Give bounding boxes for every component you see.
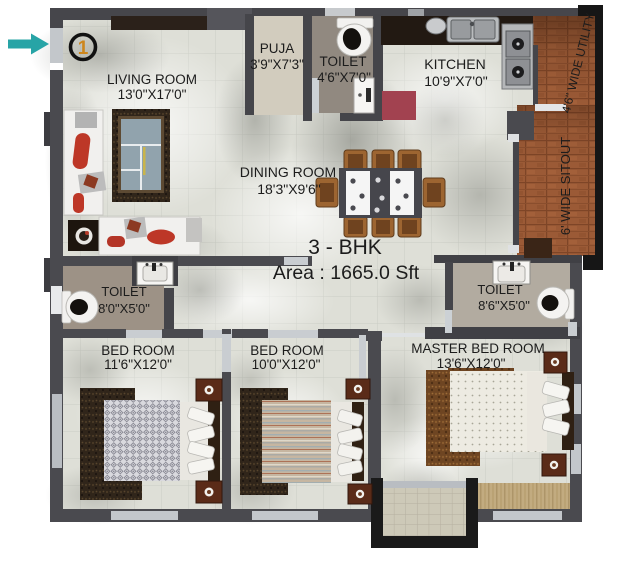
svg-text:10'0"X12'0": 10'0"X12'0": [252, 357, 321, 372]
svg-text:6' WIDE SITOUT: 6' WIDE SITOUT: [558, 137, 573, 235]
svg-text:8'0"X5'0": 8'0"X5'0": [98, 301, 150, 316]
svg-text:PUJA: PUJA: [260, 41, 295, 56]
svg-text:8'6"X5'0": 8'6"X5'0": [478, 298, 530, 313]
svg-text:18'3"X9'6": 18'3"X9'6": [257, 181, 321, 197]
svg-text:DINING ROOM: DINING ROOM: [240, 164, 336, 180]
svg-text:LIVING ROOM: LIVING ROOM: [107, 72, 197, 87]
svg-text:TOILET: TOILET: [101, 284, 146, 299]
svg-text:TOILET: TOILET: [319, 54, 366, 69]
svg-text:3'9"X7'3": 3'9"X7'3": [250, 57, 304, 72]
svg-text:KITCHEN: KITCHEN: [424, 56, 485, 72]
svg-text:Area : 1665.0 Sft: Area : 1665.0 Sft: [273, 262, 420, 284]
svg-text:TOILET: TOILET: [477, 282, 522, 297]
svg-text:BED ROOM: BED ROOM: [250, 343, 324, 358]
svg-text:13'0"X17'0": 13'0"X17'0": [118, 87, 187, 102]
svg-text:10'9"X7'0": 10'9"X7'0": [424, 73, 488, 89]
svg-text:13'6"X12'0": 13'6"X12'0": [437, 356, 506, 371]
svg-text:BED ROOM: BED ROOM: [101, 343, 175, 358]
svg-text:MASTER BED ROOM: MASTER BED ROOM: [411, 341, 545, 356]
svg-text:11'6"X12'0": 11'6"X12'0": [104, 357, 172, 372]
svg-text:3 - BHK: 3 - BHK: [308, 236, 382, 259]
svg-text:1: 1: [78, 38, 89, 59]
svg-text:4'6"X7'0": 4'6"X7'0": [317, 70, 371, 85]
